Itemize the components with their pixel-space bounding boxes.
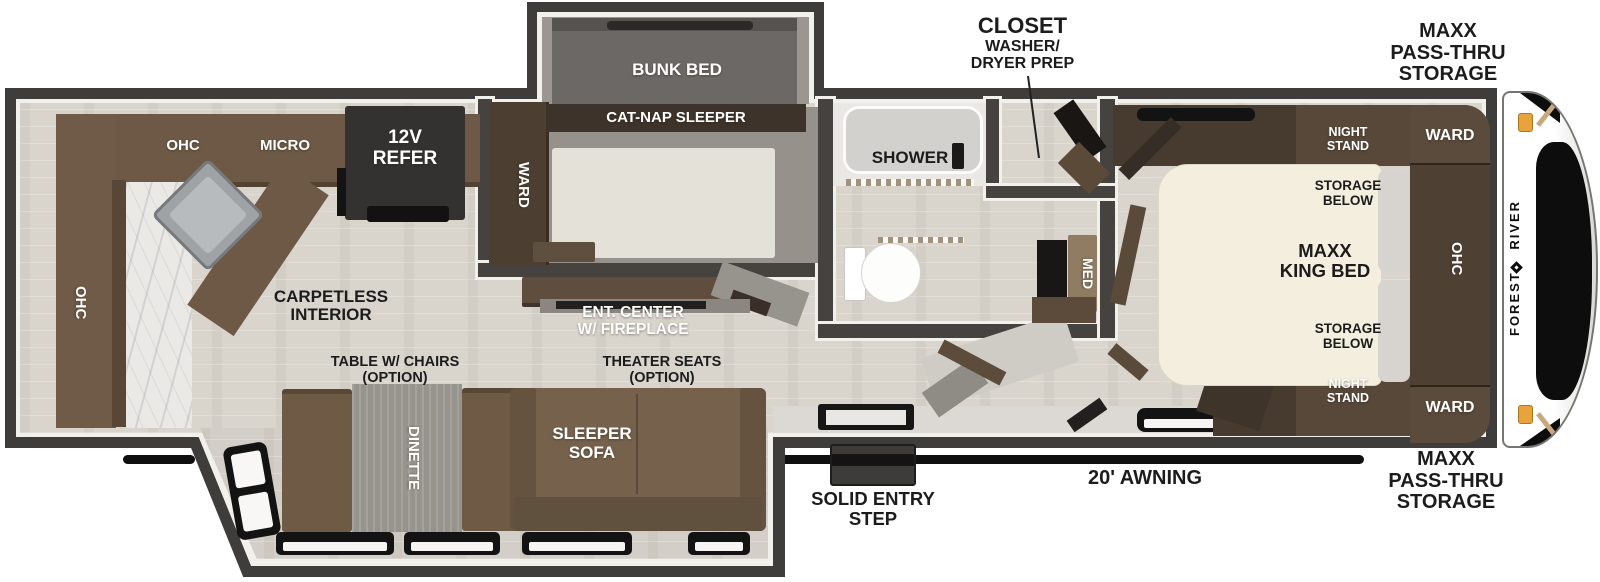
passthru-top-line3: STORAGE [1358, 64, 1538, 86]
bunkroom-step [533, 242, 595, 262]
shower-door-track [846, 179, 974, 186]
ent-center-line2: W/ FIREPLACE [543, 321, 723, 338]
awning-label: 20' AWNING [1055, 468, 1235, 490]
theater-seats-label: THEATER SEATS (OPTION) [572, 355, 752, 386]
slide-left-window-pane-top [230, 450, 265, 489]
nightstand-top-line1: NIGHT [1300, 126, 1396, 140]
storage-top-line2: BELOW [1286, 194, 1410, 209]
bunkroom-bottom-wall [478, 263, 832, 277]
sleeper-sofa-line2: SOFA [512, 444, 672, 463]
med-label: MED [1070, 245, 1095, 303]
passthru-top-line2: PASS-THRU [1358, 43, 1538, 65]
slide-left-window-pane-bottom [238, 491, 274, 532]
kitchen-sink-basin [168, 175, 247, 254]
cap-marker-light-bottom [1518, 405, 1533, 424]
entry-doorway [818, 404, 914, 430]
storage-bottom-line2: BELOW [1286, 337, 1410, 352]
cap-accent-gray-top [1558, 93, 1592, 125]
storage-below-bottom-label: STORAGE BELOW [1286, 322, 1410, 351]
cap-marker-light-top [1518, 113, 1533, 132]
shower-label: SHOWER [840, 149, 980, 167]
slide-window-2 [404, 532, 500, 555]
kitchen-ohc-top-label: OHC [143, 138, 223, 155]
toilet-bowl [861, 243, 921, 303]
refrigerator-side-vent [337, 168, 346, 216]
nightstand-top-line2: STAND [1300, 140, 1396, 154]
storage-top-line1: STORAGE [1286, 179, 1410, 194]
closet-callout-label: CLOSET WASHER/ DRYER PREP [945, 14, 1100, 72]
cap-accent-gray-bottom [1558, 416, 1592, 446]
theater-seats-line2: (OPTION) [572, 371, 752, 387]
king-bed-label: MAXX KING BED [1240, 241, 1410, 281]
windshield [1536, 142, 1592, 400]
dinette-label: DINETTE [393, 402, 421, 514]
entry-step-label: SOLID ENTRY STEP [783, 489, 963, 529]
refer-line1: 12V [345, 128, 465, 149]
slide-window-4 [688, 532, 750, 555]
passthru-bottom-line3: STORAGE [1356, 492, 1536, 514]
bath-left-wall [818, 99, 833, 338]
carpetless-line2: INTERIOR [241, 306, 421, 324]
kitchen-micro-label: MICRO [245, 138, 325, 155]
storage-below-top-label: STORAGE BELOW [1286, 179, 1410, 208]
bunk-pillow [607, 21, 753, 30]
entry-step-tread [832, 454, 914, 466]
refrigerator-label: 12V REFER [345, 128, 465, 170]
carpetless-line1: CARPETLESS [241, 288, 421, 306]
sofa-back [514, 497, 762, 531]
bedroom-ohc-label: OHC [1438, 230, 1464, 288]
bath-vanity-base [1032, 297, 1096, 323]
awning-line-left [123, 455, 195, 464]
nightstand-bottom-line1: NIGHT [1300, 378, 1396, 392]
closet-bottom-wall [986, 186, 1115, 198]
bath-tv [1037, 240, 1067, 298]
catnap-sleeper-label: CAT-NAP SLEEPER [550, 110, 802, 127]
nightstand-bottom-line2: STAND [1300, 392, 1396, 406]
entry-doorway-threshold [826, 410, 906, 425]
king-bed-line1: MAXX [1240, 241, 1410, 261]
entry-step-line1: SOLID ENTRY [783, 489, 963, 509]
kitchen-counter-left-edge [112, 180, 126, 427]
entry-step-box [830, 444, 916, 486]
bedroom-top-window [1137, 108, 1255, 121]
table-chairs-label: TABLE W/ CHAIRS (OPTION) [305, 355, 485, 386]
passthru-storage-top-label: MAXX PASS-THRU STORAGE [1358, 21, 1538, 86]
shower-closet-divider-wall [986, 99, 999, 198]
floorplan-canvas: OHC OHC MICRO 12V REFER BUNK BED WARD CA… [0, 0, 1600, 582]
bedroom-ward-top-label: WARD [1410, 127, 1490, 145]
carpetless-label: CARPETLESS INTERIOR [241, 288, 421, 325]
kitchen-ohc-side-label: OHC [58, 265, 88, 341]
closet-callout-line3: DRYER PREP [945, 55, 1100, 72]
passthru-bottom-line1: MAXX [1356, 449, 1536, 471]
table-chairs-line2: (OPTION) [305, 371, 485, 387]
ent-center-label: ENT. CENTER W/ FIREPLACE [543, 304, 723, 338]
slide-window-1 [276, 532, 394, 555]
storage-bottom-line1: STORAGE [1286, 322, 1410, 337]
passthru-top-line1: MAXX [1358, 21, 1538, 43]
closet-callout-line2: WASHER/ [945, 38, 1100, 55]
dinette-bench-left [282, 389, 352, 532]
sleeper-sofa-line1: SLEEPER [512, 425, 672, 444]
bunk-ward-label: WARD [503, 142, 531, 228]
entry-step-line2: STEP [783, 509, 963, 529]
sleeper-sofa-label: SLEEPER SOFA [512, 425, 672, 462]
nightstand-bottom-label: NIGHT STAND [1300, 378, 1396, 406]
passthru-bottom-line2: PASS-THRU [1356, 471, 1536, 493]
theater-seats-line1: THEATER SEATS [572, 355, 752, 371]
front-cap: FOREST RIVER [1502, 91, 1598, 448]
passthru-storage-bottom-label: MAXX PASS-THRU STORAGE [1356, 449, 1536, 514]
ent-center-line1: ENT. CENTER [543, 304, 723, 321]
nightstand-top-label: NIGHT STAND [1300, 126, 1396, 154]
slide-window-3 [522, 532, 632, 555]
king-bed-line2: KING BED [1240, 261, 1410, 281]
refer-line2: REFER [345, 149, 465, 170]
refrigerator-base [367, 206, 449, 222]
bunk-bed-label: BUNK BED [597, 61, 757, 80]
bedroom-ward-bottom-label: WARD [1410, 399, 1490, 417]
table-chairs-line1: TABLE W/ CHAIRS [305, 355, 485, 371]
closet-callout-line1: CLOSET [945, 14, 1100, 38]
